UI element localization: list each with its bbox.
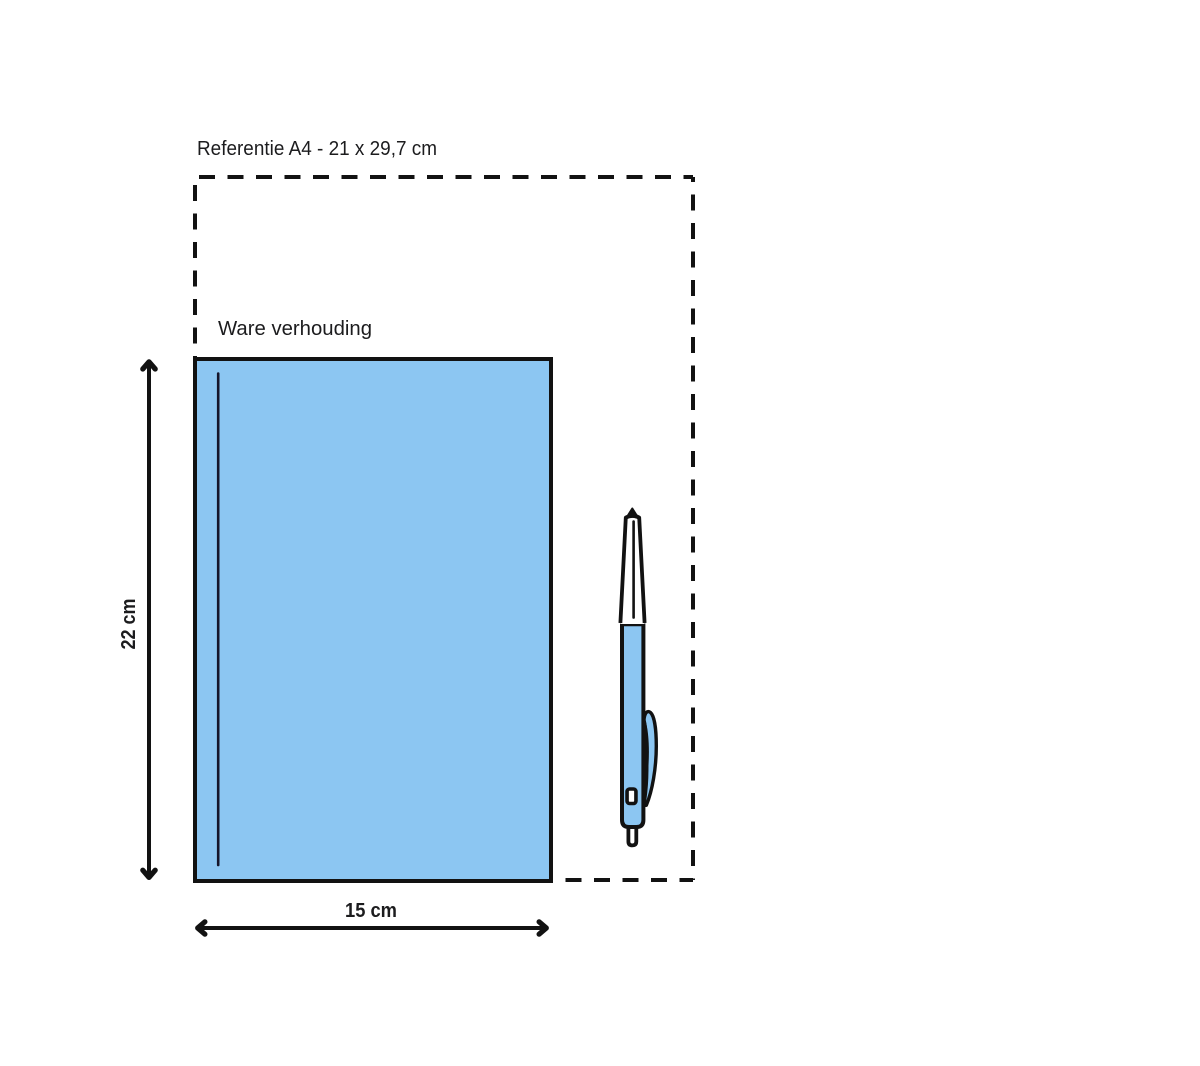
svg-text:22 cm: 22 cm [117,599,140,650]
svg-text:Referentie A4 - 21 x 29,7 cm: Referentie A4 - 21 x 29,7 cm [197,138,437,160]
svg-text:Ware verhouding: Ware verhouding [218,318,372,340]
svg-text:15 cm: 15 cm [345,899,397,922]
